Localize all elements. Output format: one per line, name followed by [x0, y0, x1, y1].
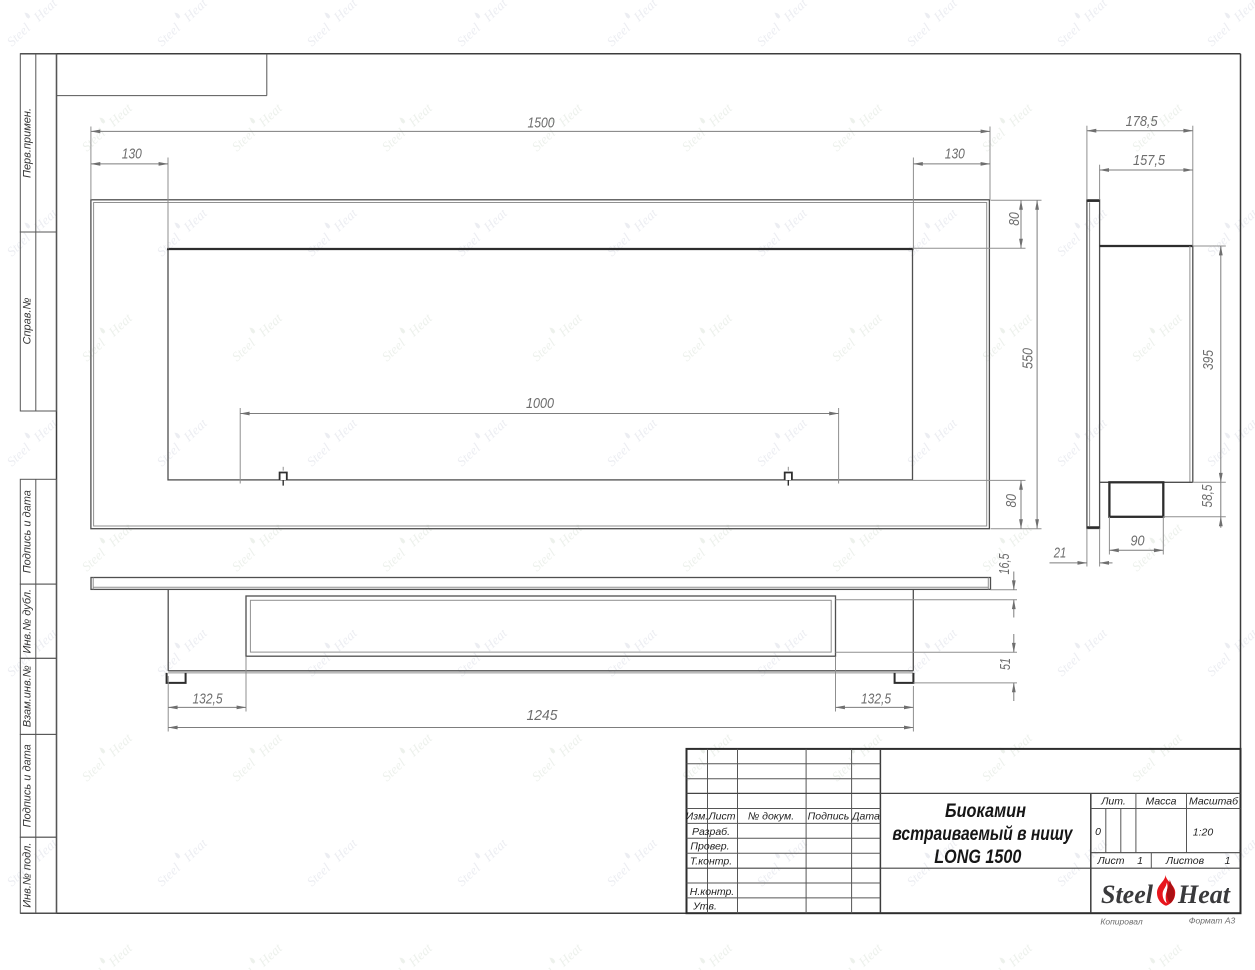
svg-text:132,5: 132,5: [861, 690, 892, 707]
svg-text:132,5: 132,5: [193, 690, 224, 707]
svg-text:Инв.№ дубл.: Инв.№ дубл.: [22, 589, 34, 654]
svg-text:157,5: 157,5: [1133, 152, 1166, 169]
svg-text:90: 90: [1131, 532, 1146, 549]
svg-text:1245: 1245: [527, 707, 559, 724]
svg-text:Масштаб: Масштаб: [1189, 796, 1239, 808]
svg-text:178,5: 178,5: [1126, 113, 1159, 130]
svg-text:Перв.примен.: Перв.примен.: [22, 108, 34, 178]
svg-text:80: 80: [1003, 493, 1020, 507]
svg-text:Steel: Steel: [1101, 880, 1154, 909]
svg-text:№ докум.: № докум.: [748, 811, 794, 823]
svg-text:Листов: Листов: [1165, 855, 1205, 867]
svg-text:1:20: 1:20: [1193, 826, 1214, 838]
svg-text:Взам.инв.№: Взам.инв.№: [22, 665, 34, 727]
svg-text:Heat: Heat: [1177, 880, 1231, 909]
svg-text:58,5: 58,5: [1199, 484, 1216, 508]
svg-text:LONG 1500: LONG 1500: [934, 847, 1021, 868]
svg-text:Инв.№ подл.: Инв.№ подл.: [22, 843, 34, 908]
svg-text:Справ.№: Справ.№: [22, 297, 34, 344]
svg-text:Н.контр.: Н.контр.: [690, 886, 734, 898]
svg-text:Подпись: Подпись: [808, 811, 850, 823]
svg-text:Масса: Масса: [1145, 796, 1176, 808]
svg-text:395: 395: [1200, 349, 1217, 370]
svg-text:Изм.: Изм.: [686, 811, 708, 823]
svg-text:1000: 1000: [526, 395, 555, 412]
svg-text:0: 0: [1095, 826, 1101, 838]
svg-text:80: 80: [1006, 212, 1023, 226]
svg-text:Т.контр.: Т.контр.: [690, 856, 732, 868]
svg-text:Подпись и дата: Подпись и дата: [22, 490, 34, 573]
svg-text:Разраб.: Разраб.: [692, 826, 730, 838]
svg-text:Лист: Лист: [1096, 855, 1124, 867]
svg-text:550: 550: [1020, 347, 1037, 369]
svg-text:Лист: Лист: [707, 811, 735, 823]
svg-text:130: 130: [122, 146, 143, 163]
svg-text:Копировал: Копировал: [1100, 917, 1142, 927]
svg-text:Лит.: Лит.: [1100, 796, 1126, 808]
svg-text:130: 130: [945, 146, 966, 163]
svg-text:21: 21: [1053, 545, 1066, 562]
svg-text:Биокамин: Биокамин: [945, 801, 1026, 822]
svg-text:51: 51: [997, 658, 1014, 670]
svg-text:встраиваемый в нишу: встраиваемый в нишу: [892, 824, 1073, 845]
svg-text:1: 1: [1137, 855, 1143, 867]
svg-text:Дата: Дата: [851, 811, 880, 823]
svg-text:1500: 1500: [528, 115, 556, 132]
svg-text:Утв.: Утв.: [692, 901, 717, 913]
svg-text:16,5: 16,5: [996, 553, 1013, 574]
svg-text:1: 1: [1225, 855, 1231, 867]
svg-text:Формат А3: Формат А3: [1189, 916, 1236, 926]
svg-text:Подпись и дата: Подпись и дата: [22, 744, 34, 827]
svg-text:Провер.: Провер.: [690, 841, 729, 853]
